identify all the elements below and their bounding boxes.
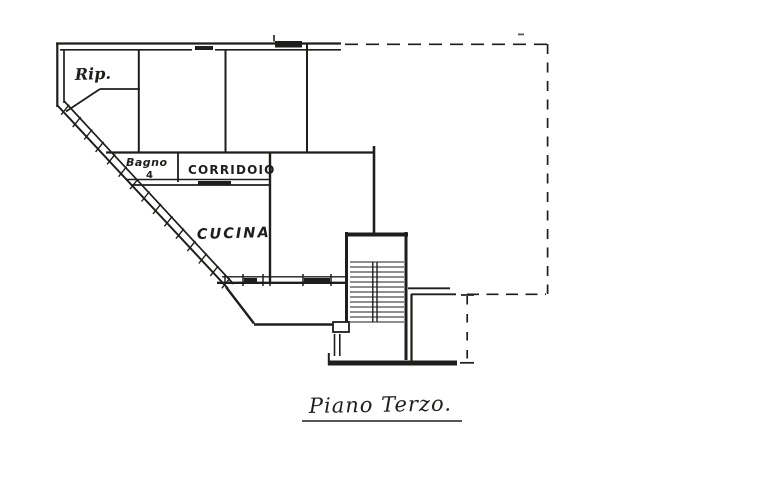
staircase [345,232,408,360]
room-label-corridoio: CORRIDOIO [188,163,276,177]
plan-title-text: Piano Terzo. [308,392,452,419]
room-label-bagno-number: 4 [146,170,153,181]
room-label-cucina: CUCINA [197,225,271,243]
dashed-property-boundary [345,34,548,363]
room-label-rip: Rip. [73,64,111,84]
floor-plan-drawing: Rip. Bagno 4 CORRIDOIO CUCINA Piano Terz… [0,0,780,495]
plan-title: Piano Terzo. [302,392,462,421]
room-rip-walls [66,89,140,112]
landing-south-wall [328,361,457,366]
window-sill [304,278,330,282]
wall-solid-segment [275,41,302,48]
window-sill [244,278,257,282]
party-wall-hatched [58,101,234,289]
scan-speck [518,34,524,36]
hatch-ticks [61,105,230,289]
window-sill [195,46,213,50]
outer-wall-west [57,43,64,108]
corridor-threshold [198,181,231,185]
scanned-floor-plan-sheet: Rip. Bagno 4 CORRIDOIO CUCINA Piano Terz… [0,0,780,495]
wall-south-windows [217,274,346,286]
door-jamb [333,322,349,332]
outer-wall-south [226,287,337,325]
stair-top-wall [345,233,408,237]
room-label-bagno: Bagno [126,156,168,169]
outer-wall-north [56,35,341,50]
